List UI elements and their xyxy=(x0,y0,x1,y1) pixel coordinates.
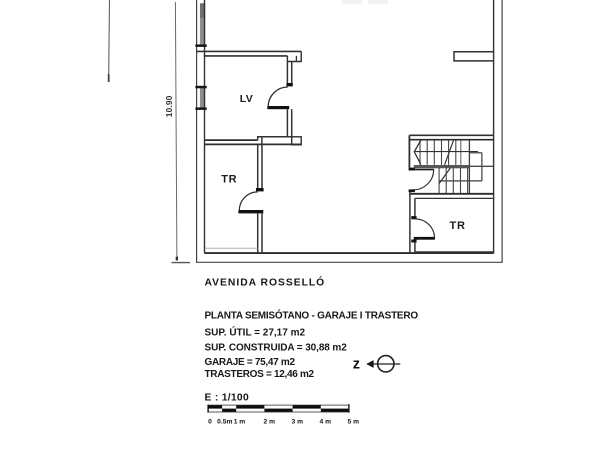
svg-text:GARAJE = 75,47 m2: GARAJE = 75,47 m2 xyxy=(205,357,296,368)
svg-text:TR: TR xyxy=(221,173,237,185)
svg-text:4 m: 4 m xyxy=(320,419,332,426)
svg-text:5 m: 5 m xyxy=(348,419,360,426)
svg-text:LV: LV xyxy=(240,93,253,105)
svg-text:TRASTEROS = 12,46 m2: TRASTEROS = 12,46 m2 xyxy=(205,369,315,380)
svg-text:0.5m: 0.5m xyxy=(217,419,232,426)
svg-text:AVENIDA ROSSELLÓ: AVENIDA ROSSELLÓ xyxy=(205,276,326,289)
svg-text:E : 1/100: E : 1/100 xyxy=(205,392,250,403)
svg-text:TR: TR xyxy=(450,220,466,232)
svg-text:z: z xyxy=(353,356,360,372)
svg-text:SUP. CONSTRUIDA = 30,88 m2: SUP. CONSTRUIDA = 30,88 m2 xyxy=(205,343,348,354)
svg-text:PLANTA SEMISÓTANO - GARAJE I T: PLANTA SEMISÓTANO - GARAJE I TRASTERO xyxy=(205,309,419,322)
svg-text:2 m: 2 m xyxy=(264,419,276,426)
svg-text:3 m: 3 m xyxy=(292,419,304,426)
svg-text:1 m: 1 m xyxy=(234,419,246,426)
svg-text:0: 0 xyxy=(208,419,212,426)
svg-text:10.90: 10.90 xyxy=(164,95,174,117)
svg-text:SUP. ÚTIL = 27,17 m2: SUP. ÚTIL = 27,17 m2 xyxy=(205,325,306,338)
